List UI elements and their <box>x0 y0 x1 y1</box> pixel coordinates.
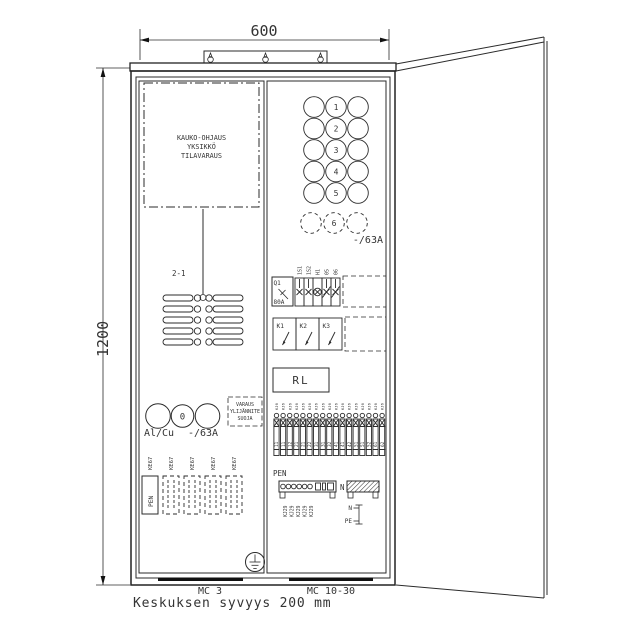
arrow-down-icon <box>101 576 106 585</box>
dimension-1200: 1200 <box>94 68 130 585</box>
terminal-screw <box>294 413 298 417</box>
terminal-number: 22 <box>307 441 313 447</box>
ke67-terminal-row: KE67KE67KE67KE67KE67 <box>148 457 242 514</box>
terminal-top-label: KJ6 <box>301 402 306 410</box>
kauko-line-1: KAUKO-OHJAUS <box>177 134 226 142</box>
terminal-number: 21 <box>301 441 307 447</box>
npe-n-label: N <box>348 505 352 512</box>
terminal-screw <box>314 413 318 417</box>
terminal-screw <box>340 413 344 417</box>
terminal-screw <box>307 413 311 417</box>
pen-bar-clamp <box>323 483 326 490</box>
cabinet-door <box>396 37 547 598</box>
terminal-foot <box>307 450 312 456</box>
ke67-label: KE67 <box>211 457 217 470</box>
relay-label: RL <box>292 374 309 387</box>
louver-slot <box>213 306 243 312</box>
control-components: 1S11S2H10506 <box>295 266 340 306</box>
terminal-number: 11 <box>281 441 287 447</box>
terminal-screw <box>334 413 338 417</box>
terminal-foot <box>366 450 371 456</box>
kj29-label: KJ29 <box>283 505 289 517</box>
meter-circle <box>304 97 325 118</box>
relay-box: RL <box>273 368 329 392</box>
louver-slot <box>213 317 243 323</box>
wire-label: 2-1 <box>172 269 186 278</box>
keyhole-icon <box>208 53 214 62</box>
pen-bar: PEN KJ29KJ29KJ29KJ29KJ29 <box>273 469 336 517</box>
terminal-foot <box>380 450 385 456</box>
louver-hole <box>194 339 200 345</box>
ke67-label: KE67 <box>169 457 175 470</box>
main-switch-id: Q1 <box>274 280 282 287</box>
terminal-foot <box>340 450 345 456</box>
meter-number: 5 <box>334 189 339 198</box>
terminal-top-label: KJ6 <box>340 402 345 410</box>
kj29-label: KJ29 <box>303 505 309 517</box>
louver-slot <box>163 306 193 312</box>
pen-terminal-box: PEN <box>142 476 158 514</box>
louver-slot <box>163 295 193 301</box>
cabinet-frame <box>130 63 396 585</box>
terminal-top-label: KJ6 <box>287 402 292 410</box>
surge-line-1: VARAUS <box>236 402 254 408</box>
terminal-number: 52 <box>367 441 373 447</box>
npe-link: N PE <box>345 505 363 525</box>
terminal-foot <box>327 450 332 456</box>
cabinet-drawing: 600 1200 <box>0 0 622 644</box>
terminal-foot <box>281 450 286 456</box>
terminal-screw <box>367 413 371 417</box>
louver-slots <box>163 295 243 345</box>
ke67-reserved-box <box>205 476 221 514</box>
terminal-number: 62 <box>380 441 386 447</box>
terminal-screw <box>360 413 364 417</box>
terminal-number: 31 <box>314 441 320 447</box>
louver-hole <box>206 328 212 334</box>
ke67-label: KE67 <box>232 457 238 470</box>
terminal-foot <box>300 450 305 456</box>
main-switch: Q1 80A <box>272 277 293 306</box>
terminal-screw <box>373 413 377 417</box>
component-label: 06 <box>333 269 339 275</box>
keyhole-icon <box>263 53 269 62</box>
spare-meter-circle <box>347 213 368 234</box>
component-label: 05 <box>324 269 330 275</box>
louver-hole <box>194 306 200 312</box>
pen-bar-hole <box>302 484 307 489</box>
terminal-top-label: KJ6 <box>320 402 325 410</box>
ke67-reserved-box <box>226 476 242 514</box>
louver-slot <box>163 328 193 334</box>
louver-hole <box>194 328 200 334</box>
terminal-strip: KJ611KJ611KJ612KJ621KJ621KJ622KJ631KJ631… <box>274 402 386 455</box>
meter-circle <box>348 97 369 118</box>
ke67-label: KE67 <box>148 457 154 470</box>
pen-terminal-label: PEN <box>148 496 155 507</box>
reserved-space-box <box>345 317 386 351</box>
meter-circle <box>304 118 325 139</box>
surge-line-3: SUOJA <box>237 416 252 422</box>
npe-pe-label: PE <box>345 518 353 525</box>
n-bar-label: N <box>340 483 345 492</box>
arrow-up-icon <box>101 68 106 77</box>
meter-circle <box>304 140 325 161</box>
arrow-right-icon <box>380 38 389 43</box>
meter-number: 4 <box>334 168 339 177</box>
terminal-top-label: KJ6 <box>373 402 378 410</box>
kauko-line-2: YKSIKKÖ <box>187 142 216 151</box>
terminal-top-label: KJ6 <box>334 402 339 410</box>
main-switch-rating: 80A <box>274 299 285 306</box>
terminal-screw <box>321 413 325 417</box>
main-meter-material: Al/Cu <box>144 428 174 439</box>
terminal-screw <box>380 413 384 417</box>
terminal-screw <box>281 413 285 417</box>
terminal-top-label: KJ6 <box>327 402 332 410</box>
louver-slot <box>213 339 243 345</box>
terminal-foot <box>353 450 358 456</box>
meter-circle-grid: 123456 <box>301 97 369 234</box>
terminal-top-label: KJ6 <box>307 402 312 410</box>
terminal-foot <box>360 450 365 456</box>
terminal-number: 21 <box>294 441 300 447</box>
terminal-top-label: KJ6 <box>367 402 372 410</box>
component-label: H1 <box>315 269 321 275</box>
terminal-number: 61 <box>373 441 379 447</box>
ke67-reserved-box <box>163 476 179 514</box>
ke67-reserved-box <box>184 476 200 514</box>
terminal-screw <box>274 413 278 417</box>
meter-circle <box>348 140 369 161</box>
pen-bar-hole <box>292 484 297 489</box>
terminal-foot <box>287 450 292 456</box>
terminal-screw <box>347 413 351 417</box>
spare-meter-circle <box>301 213 322 234</box>
kj29-label: KJ29 <box>309 505 315 517</box>
terminal-top-label: KJ6 <box>347 402 352 410</box>
contactor-label: K2 <box>300 323 308 330</box>
earth-symbol-icon <box>246 553 265 572</box>
switch-symbol-icon <box>279 289 289 299</box>
pen-bar-clamp <box>328 483 334 490</box>
dimension-1200-label: 1200 <box>94 321 112 357</box>
cable-entry-bars: MC 3 MC 10-30 <box>158 578 373 598</box>
terminal-top-label: KJ6 <box>380 402 385 410</box>
main-meter-number: 0 <box>180 413 185 423</box>
n-bar: N <box>340 481 379 498</box>
terminal-screw <box>354 413 358 417</box>
surge-protection-box: VARAUS YLIJÄNNITE SUOJA <box>228 397 262 426</box>
keyhole-icon <box>318 53 324 62</box>
component-label: 1S2 <box>306 266 312 275</box>
meter-circle <box>348 183 369 204</box>
terminal-number: 41 <box>334 441 340 447</box>
pen-bar-hole <box>286 484 291 489</box>
terminal-number: 11 <box>274 441 280 447</box>
pen-bar-label: PEN <box>273 469 287 478</box>
terminal-number: 12 <box>287 441 293 447</box>
kauko-line-3: TILAVARAUS <box>181 152 222 160</box>
terminal-foot <box>373 450 378 456</box>
terminal-screw <box>288 413 292 417</box>
spare-meter-rating-label: -/63A <box>353 235 383 246</box>
terminal-foot <box>314 450 319 456</box>
ke67-label: KE67 <box>190 457 196 470</box>
terminal-top-label: KJ6 <box>281 402 286 410</box>
arrow-left-icon <box>140 38 149 43</box>
pen-bar-hole <box>281 484 286 489</box>
louver-hole <box>206 306 212 312</box>
meter-number: 3 <box>334 146 339 155</box>
louver-slot <box>163 339 193 345</box>
meter-circle <box>304 183 325 204</box>
contactor-label: K3 <box>323 323 331 330</box>
louver-hole <box>194 317 200 323</box>
terminal-number: 51 <box>353 441 359 447</box>
spare-meter-rating: -/63A <box>353 235 383 246</box>
meter-circle <box>348 118 369 139</box>
louver-hole <box>206 317 212 323</box>
terminal-foot <box>333 450 338 456</box>
terminal-foot <box>320 450 325 456</box>
terminal-top-label: KJ6 <box>353 402 358 410</box>
terminal-top-label: KJ6 <box>294 402 299 410</box>
pen-bar-hole <box>308 484 313 489</box>
kauko-ohjaus-box: KAUKO-OHJAUS YKSIKKÖ TILAVARAUS <box>144 83 259 207</box>
kj29-label: KJ29 <box>296 505 302 517</box>
terminal-foot <box>274 450 279 456</box>
terminal-number: 51 <box>360 441 366 447</box>
mounting-bracket <box>204 51 327 63</box>
louver-slot <box>213 295 243 301</box>
contactor-label: K1 <box>277 323 285 330</box>
louver-hole <box>206 339 212 345</box>
reserved-space-box <box>343 276 386 307</box>
dimension-600-label: 600 <box>250 22 277 40</box>
meter-circle <box>304 161 325 182</box>
terminal-foot <box>347 450 352 456</box>
main-meter-circles: 0 Al/Cu -/63A <box>144 404 220 439</box>
terminal-top-label: KJ6 <box>360 402 365 410</box>
dimension-600: 600 <box>140 22 389 60</box>
terminal-screw <box>301 413 305 417</box>
surge-line-2: YLIJÄNNITE <box>230 408 260 415</box>
pen-bar-hole <box>297 484 302 489</box>
meter-number: 2 <box>334 125 339 134</box>
contactor-row: K1K2K3 <box>273 318 342 350</box>
louver-slot <box>163 317 193 323</box>
terminal-top-label: KJ6 <box>314 402 319 410</box>
main-meter-rating: -/63A <box>188 428 218 439</box>
depth-note: Keskuksen syvyys 200 mm <box>133 596 331 611</box>
terminal-foot <box>294 450 299 456</box>
terminal-number: 41 <box>340 441 346 447</box>
spare-meter-number: 6 <box>332 219 337 228</box>
terminal-number: 31 <box>320 441 326 447</box>
terminal-number: 32 <box>327 441 333 447</box>
component-label: 1S1 <box>297 266 303 275</box>
wire-2-1: 2-1 <box>172 209 206 301</box>
louver-hole <box>206 295 212 301</box>
pen-bar-clamp <box>316 483 321 490</box>
terminal-number: 42 <box>347 441 353 447</box>
terminal-top-label: KJ6 <box>274 402 279 410</box>
kj29-label: KJ29 <box>290 505 296 517</box>
louver-slot <box>213 328 243 334</box>
terminal-screw <box>327 413 331 417</box>
meter-number: 1 <box>334 103 339 112</box>
meter-circle <box>348 161 369 182</box>
